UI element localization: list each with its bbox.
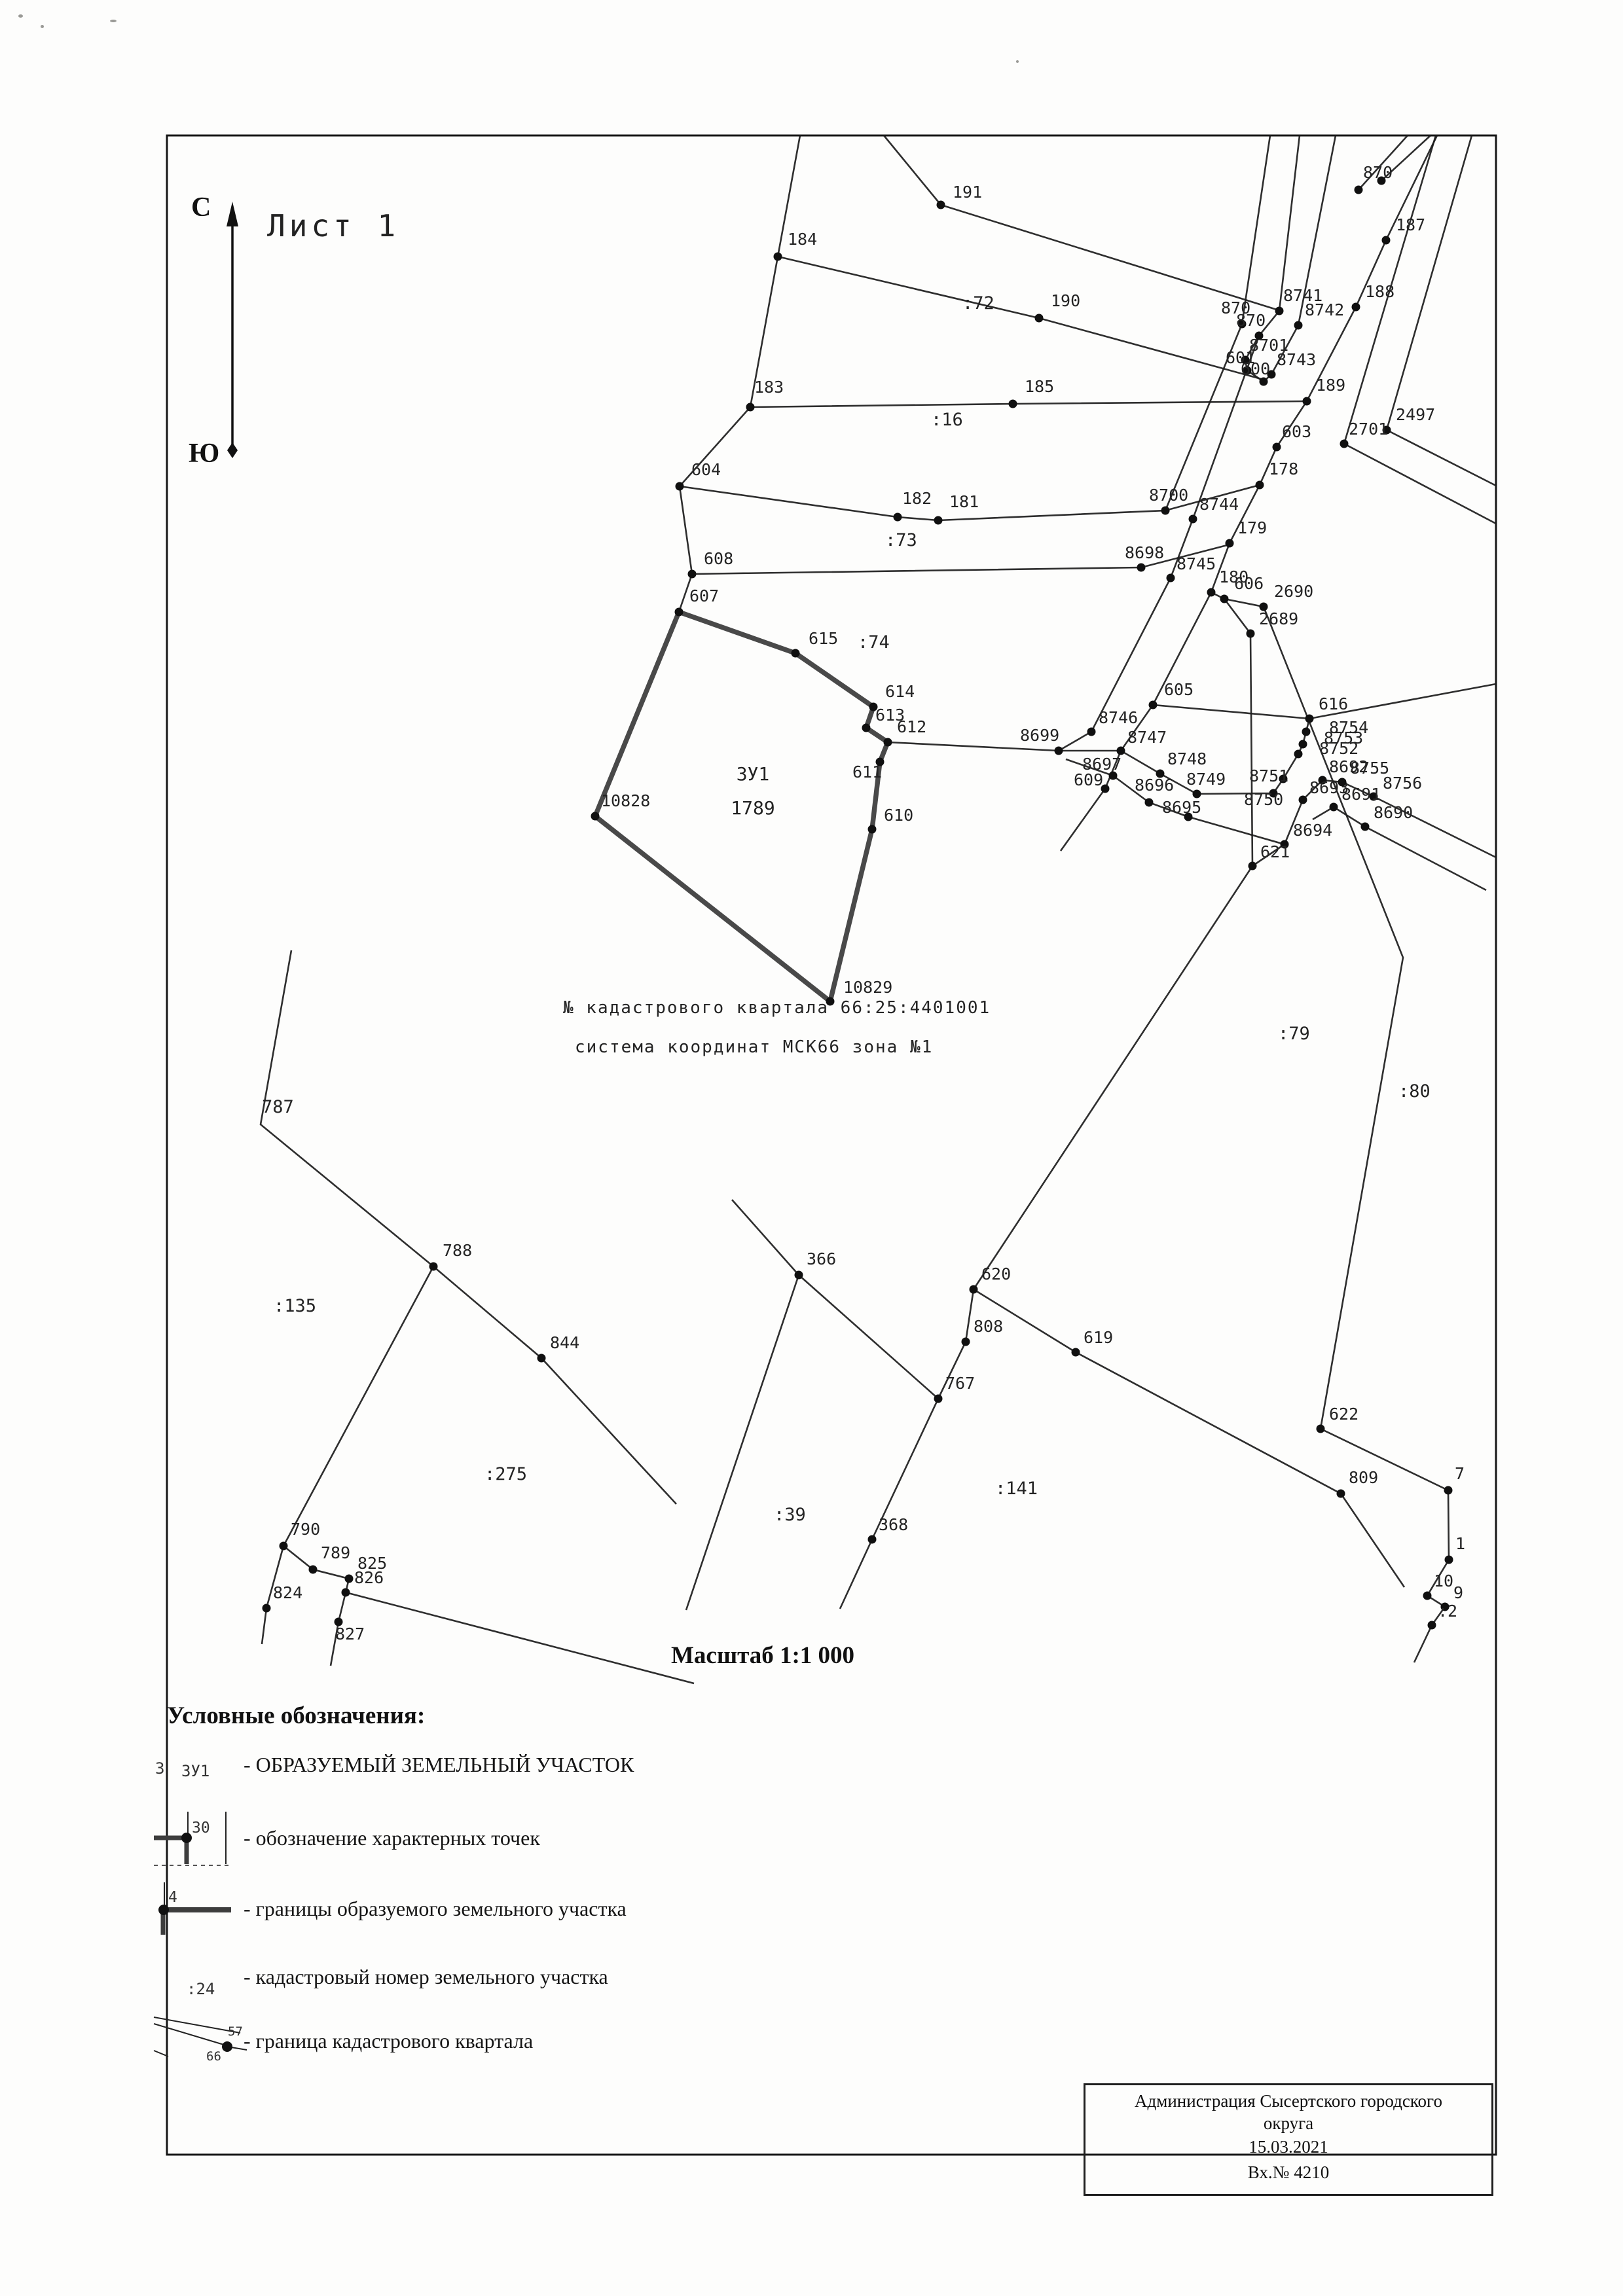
survey-point-dot: [1294, 750, 1303, 759]
survey-point-label: 607: [689, 586, 719, 605]
survey-point-dot: [1352, 303, 1360, 312]
survey-point-label: 605: [1164, 680, 1194, 699]
survey-point-label: 8694: [1293, 821, 1332, 840]
survey-point-label: 2497: [1396, 405, 1435, 424]
survey-point-label: 614: [885, 682, 915, 701]
survey-point-label: 622: [1329, 1405, 1359, 1424]
formed-parcel-symbol: 3 ЗУ1: [160, 1733, 246, 1805]
legend-row-char-points: 30 - обозначение характерных точек: [167, 1826, 1149, 1892]
boundary-line: [1242, 135, 1270, 324]
survey-point-dot: [1382, 236, 1391, 245]
survey-point-dot: [1161, 507, 1170, 515]
survey-point-dot: [1117, 747, 1125, 755]
survey-point-label: 8748: [1167, 749, 1207, 768]
parcel-number-label: :39: [774, 1505, 806, 1525]
formed-parcel-label: ЗУ1: [737, 763, 770, 785]
stamp-organization2: округа: [1085, 2113, 1491, 2135]
survey-point-dot: [1009, 400, 1017, 408]
survey-point-dot: [1275, 307, 1284, 315]
survey-point-label: 7: [1455, 1464, 1465, 1483]
survey-point-label: 9: [1453, 1583, 1463, 1602]
survey-point-label: 606: [1234, 574, 1264, 593]
survey-point-dot: [688, 570, 697, 579]
survey-point-dot: [345, 1575, 354, 1583]
survey-point-dot: [1273, 443, 1281, 452]
survey-point-dot: [1207, 588, 1216, 597]
survey-point-dot: [1137, 564, 1146, 572]
point-dot: [181, 1833, 192, 1843]
survey-point-label: 600: [1241, 359, 1270, 378]
survey-point-dot: [934, 1395, 943, 1403]
scan-speck: [1016, 60, 1019, 63]
compass-north-label: С: [191, 192, 211, 223]
survey-point-dot: [1423, 1592, 1432, 1600]
survey-point-label: 620: [981, 1265, 1011, 1283]
survey-point-label: 8749: [1186, 770, 1226, 789]
legend-heading: Условные обозначения:: [167, 1702, 1149, 1730]
survey-point-label: 8691: [1341, 785, 1381, 804]
parcel-number-label: :16: [931, 410, 963, 430]
survey-point-label: 809: [1349, 1468, 1378, 1487]
quarter-symbol-text2: 66: [206, 2049, 221, 2064]
survey-point-label: 181: [949, 492, 979, 511]
parcel-number-label: :135: [274, 1296, 316, 1316]
survey-point-dot: [1361, 823, 1370, 831]
survey-point-label: 621: [1260, 842, 1290, 861]
survey-point-dot: [937, 201, 945, 209]
quarter-symbol-text: 57: [228, 2024, 243, 2039]
survey-point-label: 8744: [1199, 495, 1239, 514]
survey-point-label: 185: [1025, 377, 1054, 396]
survey-point-label: 2690: [1274, 582, 1313, 601]
survey-point-dot: [1087, 728, 1096, 736]
survey-point-dot: [1035, 314, 1044, 323]
stamp-organization: Администрация Сысертского городского: [1085, 2085, 1491, 2113]
survey-point-label: 603: [1282, 422, 1311, 441]
survey-point-dot: [1226, 539, 1234, 548]
survey-point-label: 8742: [1305, 300, 1344, 319]
legend-row-parcel-boundary: 4 - границы образуемого земельного участ…: [167, 1897, 1149, 1962]
survey-point-dot: [868, 1535, 877, 1544]
stamp-incoming-number: Вх.№ 4210: [1085, 2162, 1491, 2184]
survey-point-label: 188: [1365, 282, 1395, 301]
survey-point-label: 183: [754, 378, 784, 397]
survey-point-label: 604: [691, 460, 721, 479]
survey-point-dot: [280, 1542, 288, 1551]
survey-point-label: 615: [809, 629, 838, 648]
point-dot: [158, 1905, 169, 1915]
parcel-number-label: :79: [1278, 1024, 1310, 1044]
parcel-number-label: :275: [484, 1464, 527, 1484]
survey-point-dot: [1337, 1490, 1345, 1498]
scanned-page: ЗУ11789191184190185183604182181608607615…: [0, 0, 1623, 2296]
survey-point-label: 10829: [843, 978, 892, 997]
survey-point-dot: [868, 825, 877, 834]
formed-parcel-symbol-text: ЗУ1: [181, 1762, 210, 1780]
survey-point-label: 366: [807, 1249, 836, 1268]
legend-label: - ОБРАЗУЕМЫЙ ЗЕМЕЛЬНЫЙ УЧАСТОК: [244, 1753, 634, 1777]
survey-point-label: 184: [788, 230, 817, 249]
survey-point-label: 8746: [1099, 708, 1138, 727]
survey-point-dot: [1167, 574, 1175, 583]
survey-point-dot: [1444, 1486, 1453, 1495]
survey-point-label: 790: [291, 1520, 320, 1539]
survey-point-dot: [1302, 728, 1311, 736]
survey-point-dot: [1260, 378, 1268, 386]
parcel-number-label: :73: [885, 530, 917, 550]
survey-point-dot: [309, 1566, 318, 1574]
parcel-number-label: :74: [858, 632, 890, 653]
survey-point-label: 178: [1269, 459, 1298, 478]
boundary-line: [1061, 135, 1437, 851]
survey-point-dot: [1189, 515, 1197, 524]
boundary-line: [732, 1200, 799, 1275]
parcel-number-label: :72: [962, 293, 994, 314]
survey-point-dot: [1299, 796, 1307, 804]
survey-point-dot: [884, 738, 892, 747]
survey-point-label: 190: [1051, 291, 1080, 310]
survey-point-dot: [1256, 481, 1264, 490]
map-annotation: система координат МСК66 зона №1: [575, 1037, 933, 1057]
survey-point-dot: [538, 1354, 546, 1363]
survey-point-label: 870: [1236, 311, 1266, 330]
legend-label: - кадастровый номер земельного участка: [244, 1965, 608, 1989]
survey-point-dot: [1305, 715, 1314, 723]
survey-point-dot: [1428, 1621, 1436, 1630]
survey-point-dot: [342, 1588, 350, 1597]
survey-point-label: 8756: [1383, 774, 1422, 793]
survey-point-label: 10: [1434, 1571, 1453, 1590]
survey-point-dot: [1330, 803, 1338, 812]
survey-point-label: 824: [273, 1583, 302, 1602]
survey-point-dot: [1303, 397, 1311, 406]
cadastral-number-symbol: :24: [160, 1945, 246, 2017]
survey-point-label: 189: [1316, 376, 1345, 395]
point-dot: [222, 2041, 232, 2052]
survey-point-dot: [1247, 630, 1255, 638]
survey-point-label: 8752: [1319, 739, 1359, 758]
survey-point-label: 827: [335, 1624, 365, 1643]
legend-row-formed-parcel: 3 ЗУ1 - ОБРАЗУЕМЫЙ ЗЕМЕЛЬНЫЙ УЧАСТОК: [167, 1753, 1149, 1812]
survey-point-dot: [774, 253, 782, 261]
survey-point-label: 187: [1396, 215, 1425, 234]
survey-point-dot: [862, 724, 871, 732]
boundary-line: [799, 1275, 938, 1399]
boundary-line: [686, 1275, 799, 1610]
survey-point-dot: [792, 649, 800, 658]
survey-point-dot: [1299, 740, 1307, 749]
boundary-line: [778, 257, 1264, 380]
survey-point-label: 179: [1237, 518, 1267, 537]
legend-label: - обозначение характерных точек: [244, 1826, 540, 1850]
survey-point-dot: [1377, 177, 1386, 185]
parcel-number-label: :80: [1398, 1081, 1431, 1102]
survey-point-dot: [746, 403, 755, 412]
survey-point-dot: [1294, 321, 1303, 330]
compass-south-label: Ю: [189, 439, 219, 469]
parcel-number-label: 787: [262, 1097, 294, 1117]
survey-point-dot: [1317, 1425, 1325, 1433]
survey-point-dot: [795, 1271, 803, 1280]
survey-point-label: 844: [550, 1333, 579, 1352]
survey-point-label: 8696: [1135, 776, 1174, 795]
registration-stamp: Администрация Сысертского городского окр…: [1084, 2083, 1493, 2196]
survey-point-dot: [962, 1338, 970, 1346]
survey-point-dot: [676, 482, 684, 491]
parcel-number-label: :141: [995, 1479, 1038, 1499]
survey-point-label: 8700: [1149, 486, 1188, 505]
survey-point-label: 182: [902, 489, 932, 508]
survey-point-label: 8751: [1249, 766, 1288, 785]
survey-point-label: 368: [879, 1515, 908, 1534]
survey-point-label: 1: [1455, 1534, 1465, 1553]
legend: Условные обозначения: 3 ЗУ1 - ОБРАЗУЕМЫЙ…: [167, 1702, 1149, 1730]
boundary-line: [750, 401, 1307, 407]
survey-point-label: 8750: [1244, 790, 1283, 809]
survey-point-label: 8690: [1374, 803, 1413, 822]
survey-point-label: 788: [443, 1241, 472, 1260]
compass-south-diamond-icon: [227, 442, 238, 458]
boundary-line: [680, 135, 800, 486]
survey-point-label: 808: [974, 1317, 1003, 1336]
survey-point-dot: [675, 608, 684, 617]
survey-point-label: 609: [1074, 770, 1103, 789]
scale-label: Масштаб 1:1 000: [0, 1641, 1525, 1670]
cadastral-number-symbol-text: :24: [187, 1980, 215, 1998]
survey-point-label: 2701: [1349, 420, 1388, 439]
map-annotation: № кадастрового квартала 66:25:4401001: [563, 998, 991, 1018]
survey-point-label: 2689: [1259, 609, 1298, 628]
cut-glyph: 3: [155, 1759, 164, 1778]
boundary-line: [1387, 135, 1496, 486]
parcel-boundary-symbol-text: 4: [168, 1889, 177, 1906]
survey-point-label: 826: [354, 1568, 384, 1587]
survey-point-dot: [263, 1604, 271, 1613]
boundary-line: [346, 1592, 694, 1683]
survey-point-label: 616: [1319, 694, 1348, 713]
compass-arrowhead-icon: [227, 202, 238, 226]
survey-point-dot: [1193, 790, 1201, 798]
survey-point-dot: [429, 1263, 438, 1271]
survey-point-label: 611: [852, 762, 882, 781]
survey-point-dot: [1445, 1556, 1453, 1564]
survey-point-dot: [1355, 186, 1363, 194]
survey-point-label: 10828: [601, 791, 650, 810]
survey-point-label: 619: [1084, 1328, 1113, 1347]
legend-label: - границы образуемого земельного участка: [244, 1897, 627, 1921]
survey-point-dot: [591, 812, 600, 821]
survey-point-dot: [934, 516, 943, 525]
survey-point-dot: [1220, 595, 1229, 603]
survey-point-label: 8747: [1127, 728, 1167, 747]
formed-parcel-area-label: 1789: [731, 797, 775, 819]
survey-point-label: 8695: [1162, 798, 1201, 817]
survey-point-dot: [1055, 747, 1063, 755]
survey-point-label: 8745: [1176, 554, 1216, 573]
survey-point-label: 191: [953, 183, 982, 202]
scan-speck: [41, 25, 44, 28]
legend-label: - граница кадастрового квартала: [244, 2029, 533, 2053]
scan-speck: [110, 20, 117, 22]
survey-point-label: :2: [1438, 1602, 1457, 1621]
boundary-line: [1211, 592, 1264, 607]
boundary-line: [1344, 135, 1496, 524]
survey-point-label: 608: [704, 549, 733, 568]
survey-point-dot: [970, 1285, 978, 1294]
survey-point-dot: [1149, 701, 1158, 709]
char-point-symbol-text: 30: [192, 1820, 210, 1837]
stamp-date: 15.03.2021: [1085, 2136, 1491, 2159]
sheet-title: Лист 1: [267, 208, 399, 243]
legend-row-quarter-boundary: 57 66 - граница кадастрового квартала: [167, 2029, 1149, 2101]
boundary-line: [884, 135, 1277, 310]
survey-point-dot: [1249, 862, 1257, 870]
legend-row-cadastral-number: :24 - кадастровый номер земельного участ…: [167, 1965, 1149, 2017]
scan-speck: [18, 14, 23, 18]
survey-point-label: 8699: [1020, 726, 1059, 745]
survey-point-label: 612: [897, 717, 926, 736]
survey-point-dot: [894, 513, 902, 522]
survey-point-dot: [1145, 798, 1154, 807]
survey-point-label: 767: [945, 1374, 975, 1393]
survey-point-dot: [1072, 1348, 1080, 1357]
boundary-line: [261, 950, 676, 1504]
survey-point-label: 789: [321, 1543, 350, 1562]
survey-point-dot: [1340, 440, 1349, 448]
survey-point-label: 610: [884, 806, 913, 825]
survey-point-label: 8698: [1125, 543, 1164, 562]
survey-point-label: 8743: [1277, 350, 1316, 369]
